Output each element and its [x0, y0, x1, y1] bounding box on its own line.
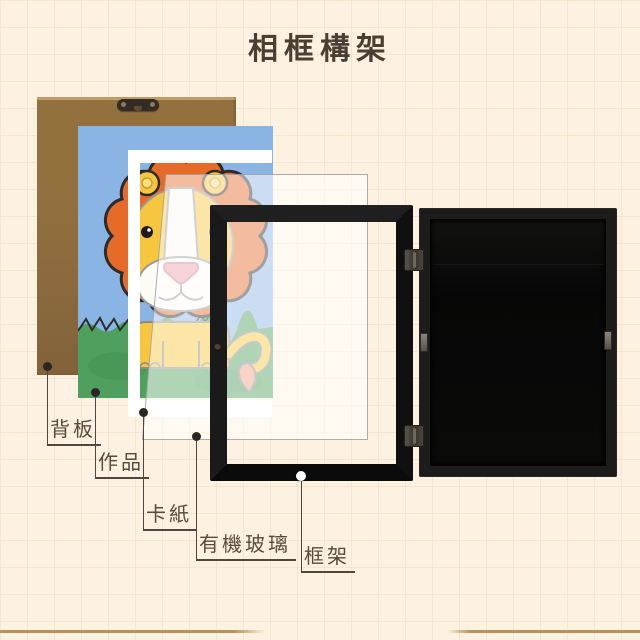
hanger-bracket-icon [117, 99, 159, 111]
bottom-accent-line-left [0, 630, 266, 633]
screw-icon [121, 102, 126, 107]
frame-box-shelf-line [433, 264, 603, 265]
magnet-clip-left-icon [420, 333, 428, 352]
bottom-accent-line-right [447, 630, 640, 633]
frame-front-layer [210, 205, 413, 481]
callout-dot [139, 408, 148, 417]
callout-dot [91, 388, 100, 397]
hinge-pin [413, 252, 416, 268]
frame-magnet-dot [214, 344, 221, 351]
callout-dot-white [296, 471, 306, 481]
screw-icon [150, 102, 155, 107]
frame-back-box [419, 208, 617, 477]
page-title: 相框構架 [0, 24, 640, 68]
callout-label-mat: 卡紙 [143, 502, 197, 531]
callout-label-artwork: 作品 [95, 450, 149, 479]
product-diagram-stage: 相框構架 [0, 0, 640, 640]
hinge-bottom-icon [404, 425, 424, 447]
callout-label-backboard: 背板 [47, 417, 101, 446]
hinge-top-icon [404, 249, 424, 271]
hanger-notch [134, 106, 142, 111]
magnet-clip-right-icon [604, 331, 612, 350]
hinge-pin [413, 428, 416, 444]
callout-label-acrylic: 有機玻璃 [196, 532, 296, 561]
callout-dot [192, 432, 201, 441]
callout-label-frame: 框架 [301, 544, 355, 573]
callout-dot [43, 362, 52, 371]
frame-box-recess [430, 219, 606, 466]
